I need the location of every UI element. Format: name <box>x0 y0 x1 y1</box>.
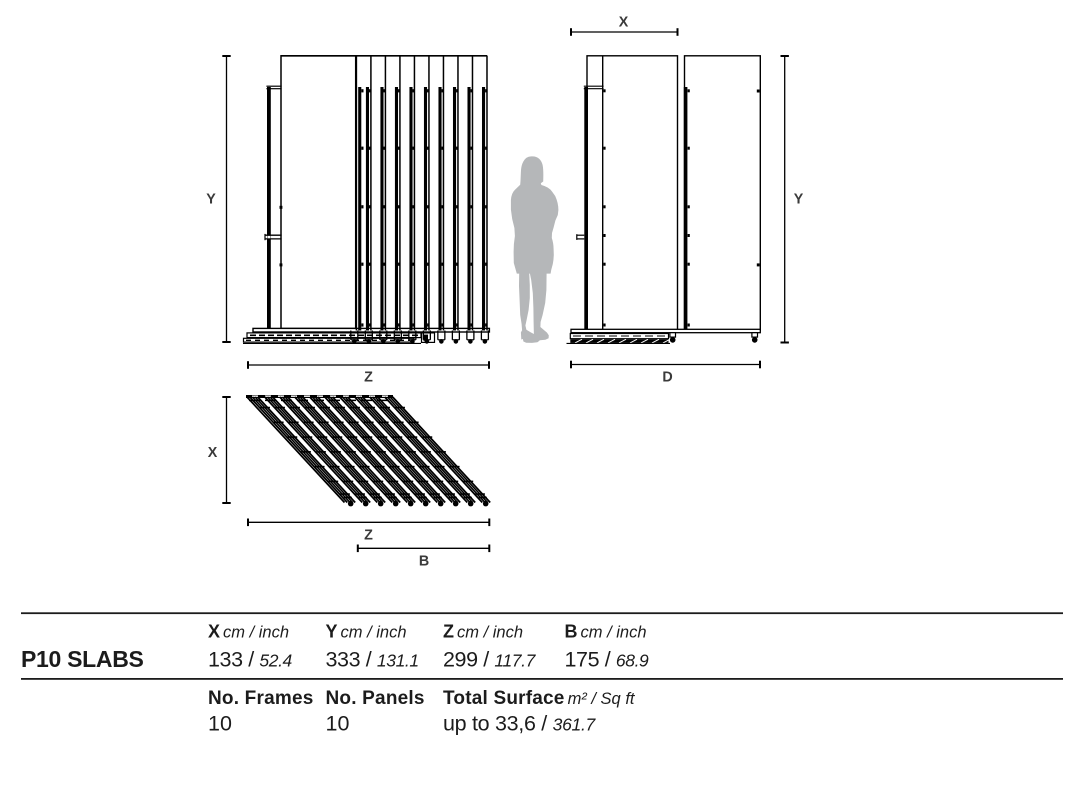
svg-text:10: 10 <box>326 712 350 736</box>
svg-text:X: X <box>619 15 629 31</box>
svg-text:P10 SLABS: P10 SLABS <box>21 646 144 672</box>
svg-text:up to 33,6 / 361.7: up to 33,6 / 361.7 <box>443 712 597 736</box>
svg-text:Y: Y <box>206 192 216 208</box>
svg-text:299 / 117.7: 299 / 117.7 <box>443 648 537 672</box>
svg-text:Xcm / inch: Xcm / inch <box>208 622 289 642</box>
svg-text:Zcm / inch: Zcm / inch <box>443 622 523 642</box>
svg-text:X: X <box>208 445 218 461</box>
svg-text:Z: Z <box>364 528 373 544</box>
svg-text:Ycm / inch: Ycm / inch <box>326 622 407 642</box>
svg-text:No. Frames: No. Frames <box>208 688 313 709</box>
svg-text:Bcm / inch: Bcm / inch <box>565 622 647 642</box>
svg-text:B: B <box>419 554 429 570</box>
svg-text:10: 10 <box>208 712 232 736</box>
svg-text:333 / 131.1: 333 / 131.1 <box>326 648 419 672</box>
svg-text:Y: Y <box>794 192 804 208</box>
svg-text:No. Panels: No. Panels <box>326 688 425 709</box>
svg-text:175 / 68.9: 175 / 68.9 <box>565 648 650 672</box>
svg-text:D: D <box>662 370 672 386</box>
svg-text:133 / 52.4: 133 / 52.4 <box>208 648 293 672</box>
svg-text:Total Surfacem² / Sq ft: Total Surfacem² / Sq ft <box>443 688 636 709</box>
svg-text:Z: Z <box>364 370 373 386</box>
